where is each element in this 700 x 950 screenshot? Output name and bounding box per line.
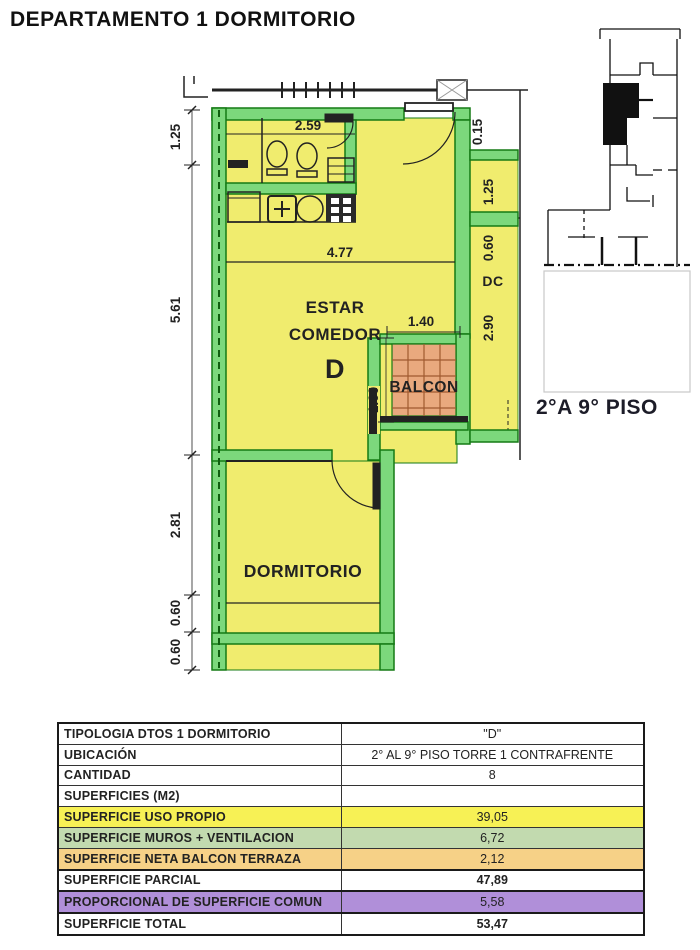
row-label: SUPERFICIES (M2) [58, 786, 341, 807]
row-value: 6,72 [341, 827, 644, 848]
row-label: SUPERFICIE USO PROPIO [58, 807, 341, 828]
balcony-railing [380, 416, 468, 422]
table-row: PROPORCIONAL DE SUPERFICIE COMUN 5,58 [58, 891, 644, 913]
row-value: "D" [341, 723, 644, 744]
table-row: CANTIDAD 8 [58, 765, 644, 786]
dim-left-3: 2.81 [168, 511, 183, 538]
row-value: 2,12 [341, 848, 644, 869]
dim-right-4: 2.90 [481, 315, 496, 341]
key-plan [540, 15, 700, 410]
row-value: 2° AL 9° PISO TORRE 1 CONTRAFRENTE [341, 744, 644, 765]
table-row: TIPOLOGIA DTOS 1 DORMITORIO "D" [58, 723, 644, 744]
page: DEPARTAMENTO 1 DORMITORIO [0, 0, 700, 950]
row-label: SUPERFICIE MUROS + VENTILACION [58, 827, 341, 848]
row-value: 5,58 [341, 891, 644, 913]
table-row: SUPERFICIE PARCIAL 47,89 [58, 870, 644, 892]
dim-right-2: 1.25 [481, 178, 496, 205]
row-label: UBICACIÓN [58, 744, 341, 765]
key-plan-outline [544, 29, 690, 267]
bedroom-door-leaf [373, 463, 380, 509]
room-label-balcon: BALCON [389, 379, 458, 396]
dim-living-width: 4.77 [327, 245, 353, 260]
row-value [341, 786, 644, 807]
room-label-estar: ESTAR [306, 298, 365, 317]
row-label: CANTIDAD [58, 765, 341, 786]
row-value: 53,47 [341, 913, 644, 935]
table-row: SUPERFICIE MUROS + VENTILACION 6,72 [58, 827, 644, 848]
bath-door-leaf [325, 114, 353, 122]
row-label: PROPORCIONAL DE SUPERFICIE COMUN [58, 891, 341, 913]
spec-table: TIPOLOGIA DTOS 1 DORMITORIO "D" UBICACIÓ… [57, 722, 645, 936]
dim-bath-width: 2.59 [295, 118, 321, 133]
row-label: SUPERFICIE TOTAL [58, 913, 341, 935]
unit-letter: D [325, 354, 345, 384]
table-row: UBICACIÓN 2° AL 9° PISO TORRE 1 CONTRAFR… [58, 744, 644, 765]
row-value: 47,89 [341, 870, 644, 892]
shower-tray [228, 160, 248, 168]
entry-door-leaf [405, 103, 453, 111]
key-plan-unit-highlight [603, 83, 639, 145]
dim-left-4: 0.60 [168, 600, 183, 626]
table-row: SUPERFICIE NETA BALCON TERRAZA 2,12 [58, 848, 644, 869]
table-row: SUPERFICIES (M2) [58, 786, 644, 807]
key-plan-lower-block [544, 271, 690, 392]
room-label-comedor: COMEDOR [289, 325, 381, 344]
floor-plan: 2.59 4.77 ESTAR COMEDOR D 1.40 1.60 BALC… [150, 70, 550, 700]
dim-right-3: 0.60 [481, 235, 496, 261]
dim-balcony-width: 1.40 [408, 314, 434, 329]
row-label: SUPERFICIE PARCIAL [58, 870, 341, 892]
adjacent-unit-label: DC [482, 273, 503, 289]
stove-icon [326, 194, 356, 222]
dim-right-1: 0.15 [470, 118, 485, 145]
dim-left-1: 1.25 [168, 123, 183, 150]
dim-balcony-depth: 1.60 [366, 387, 381, 413]
table-row: SUPERFICIE TOTAL 53,47 [58, 913, 644, 935]
row-value: 8 [341, 765, 644, 786]
row-label: SUPERFICIE NETA BALCON TERRAZA [58, 848, 341, 869]
row-label: TIPOLOGIA DTOS 1 DORMITORIO [58, 723, 341, 744]
row-value: 39,05 [341, 807, 644, 828]
room-label-dormitorio: DORMITORIO [244, 561, 362, 581]
dim-left-2: 5.61 [168, 296, 183, 323]
dim-left-5: 0.60 [168, 639, 183, 665]
page-title: DEPARTAMENTO 1 DORMITORIO [10, 8, 356, 32]
key-plan-caption: 2°A 9° PISO [536, 396, 696, 420]
table-row: SUPERFICIE USO PROPIO 39,05 [58, 807, 644, 828]
dimension-chain-left [184, 106, 200, 674]
